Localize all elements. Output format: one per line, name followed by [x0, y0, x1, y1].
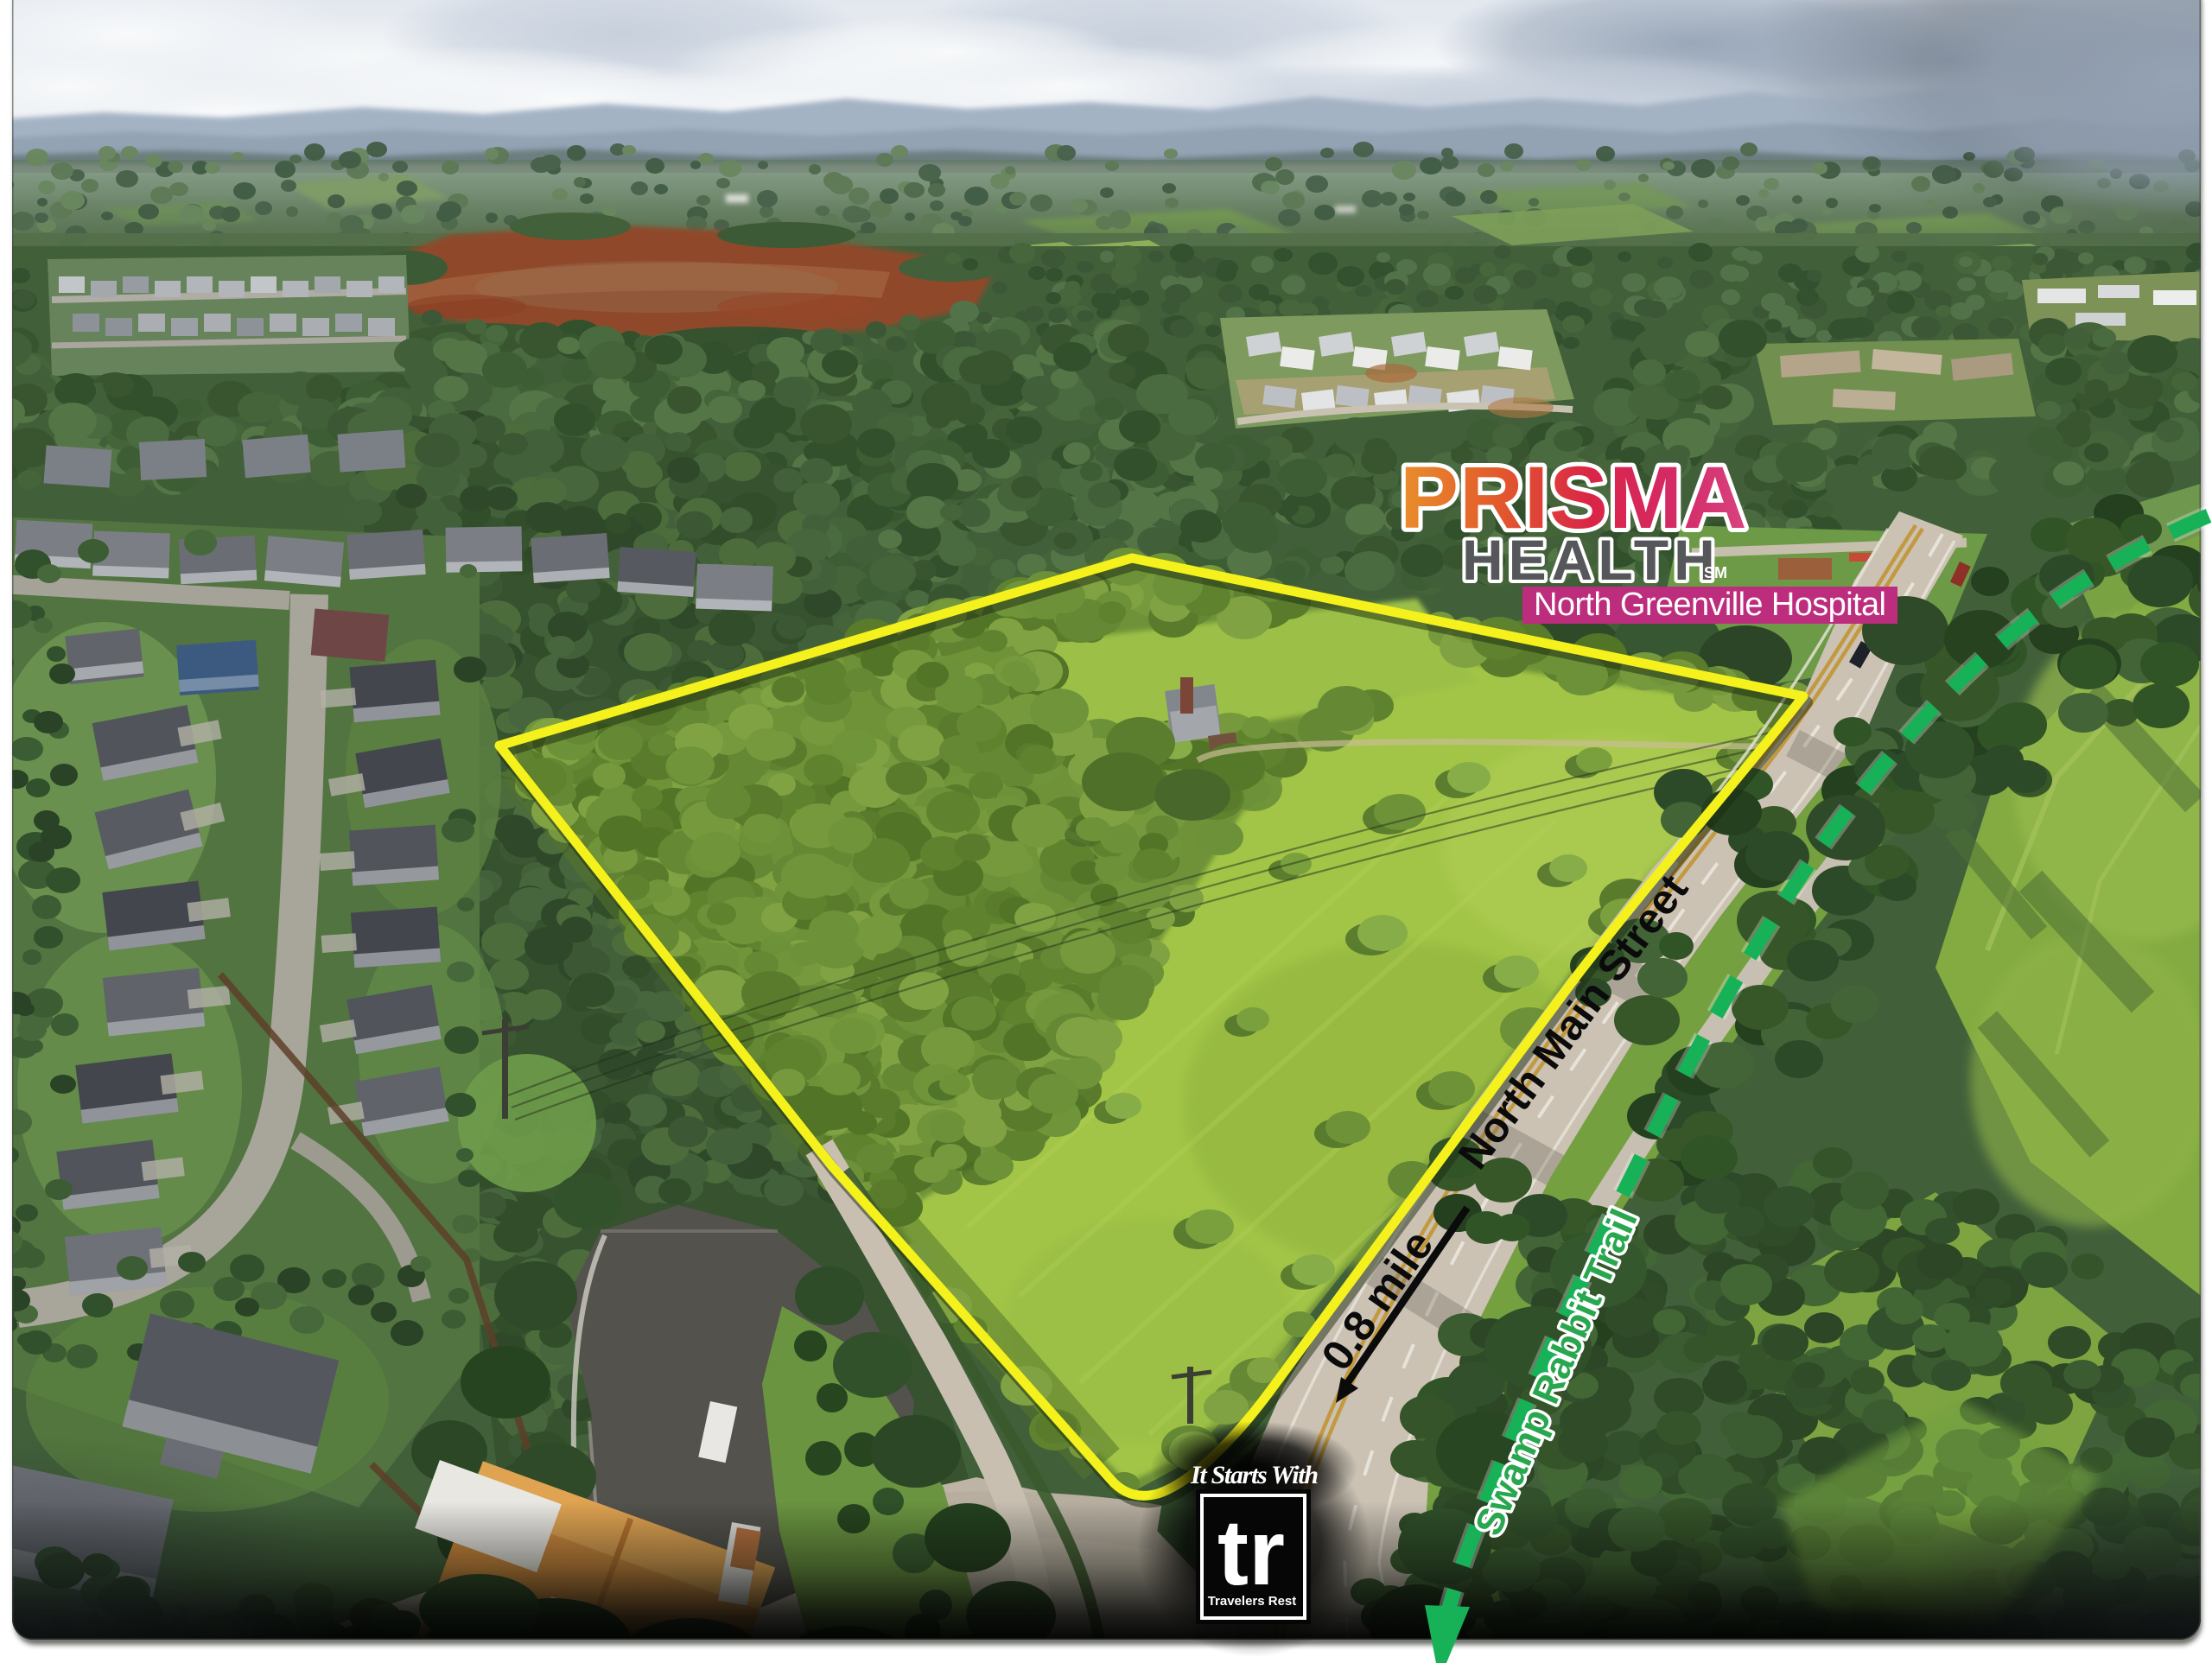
svg-text:tr: tr — [1217, 1500, 1285, 1604]
svg-text:North Greenville Hospital: North Greenville Hospital — [1534, 587, 1886, 623]
svg-text:HEALTH: HEALTH — [1462, 528, 1720, 592]
svg-text:Travelers Rest: Travelers Rest — [1208, 1594, 1297, 1609]
svg-text:It Starts With: It Starts With — [1190, 1461, 1319, 1489]
svg-text:SM: SM — [1704, 564, 1727, 581]
